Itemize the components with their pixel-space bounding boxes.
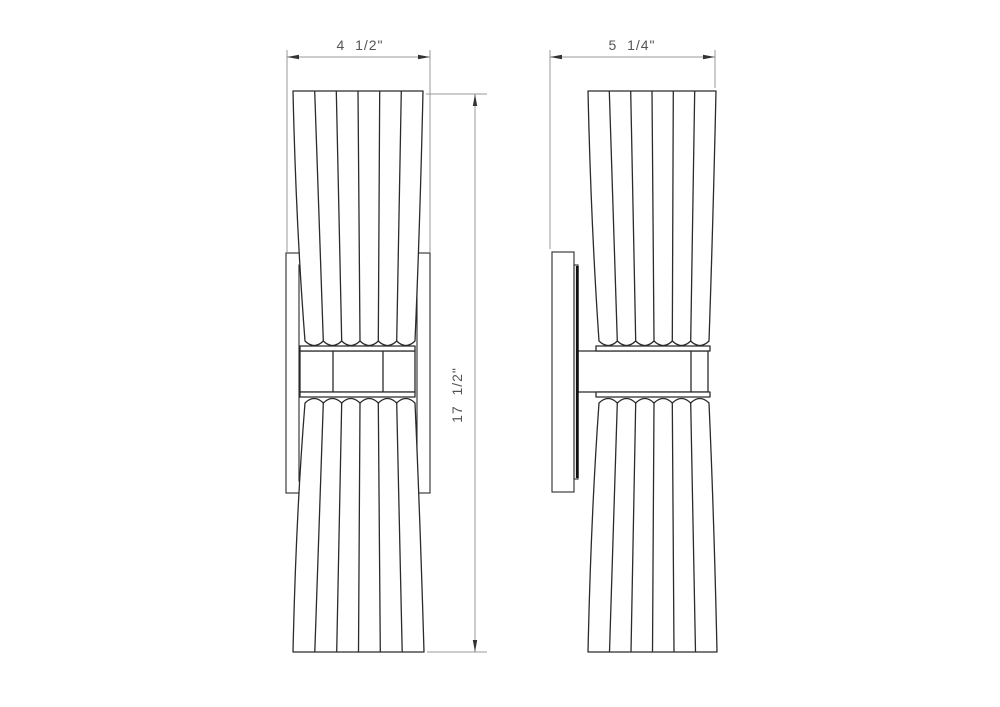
- side-view: [552, 91, 717, 652]
- front-band-top-plate: [300, 346, 415, 351]
- arrow-right-icon: [703, 55, 715, 59]
- arrow-left-icon: [287, 55, 299, 59]
- side-backplate-outer: [552, 252, 574, 492]
- front-band-bottom-plate: [300, 392, 415, 397]
- front-band-body: [300, 351, 415, 392]
- arrow-left-icon: [550, 55, 562, 59]
- front-width-label: 4 1/2": [337, 37, 384, 53]
- front-center-band: [300, 346, 415, 397]
- side-upper-shade: [588, 91, 716, 346]
- dimension-overall-height: 17 1/2": [426, 94, 487, 652]
- front-lower-shade: [293, 399, 424, 653]
- side-band-top-plate: [596, 346, 710, 351]
- technical-drawing: 4 1/2" 5 1/4" 17 1/2": [0, 0, 1000, 707]
- side-center-band: [578, 346, 710, 397]
- overall-height-label: 17 1/2": [449, 367, 465, 423]
- front-view: [286, 91, 430, 652]
- side-depth-label: 5 1/4": [609, 37, 656, 53]
- front-upper-shade: [293, 91, 423, 346]
- side-band-body: [578, 351, 708, 392]
- arrow-up-icon: [473, 94, 477, 106]
- arrow-down-icon: [473, 640, 477, 652]
- side-band-bottom-plate: [596, 392, 710, 397]
- arrow-right-icon: [418, 55, 430, 59]
- side-lower-shade: [588, 399, 717, 653]
- drawing-canvas: 4 1/2" 5 1/4" 17 1/2": [0, 0, 1000, 707]
- side-backplate: [552, 252, 578, 492]
